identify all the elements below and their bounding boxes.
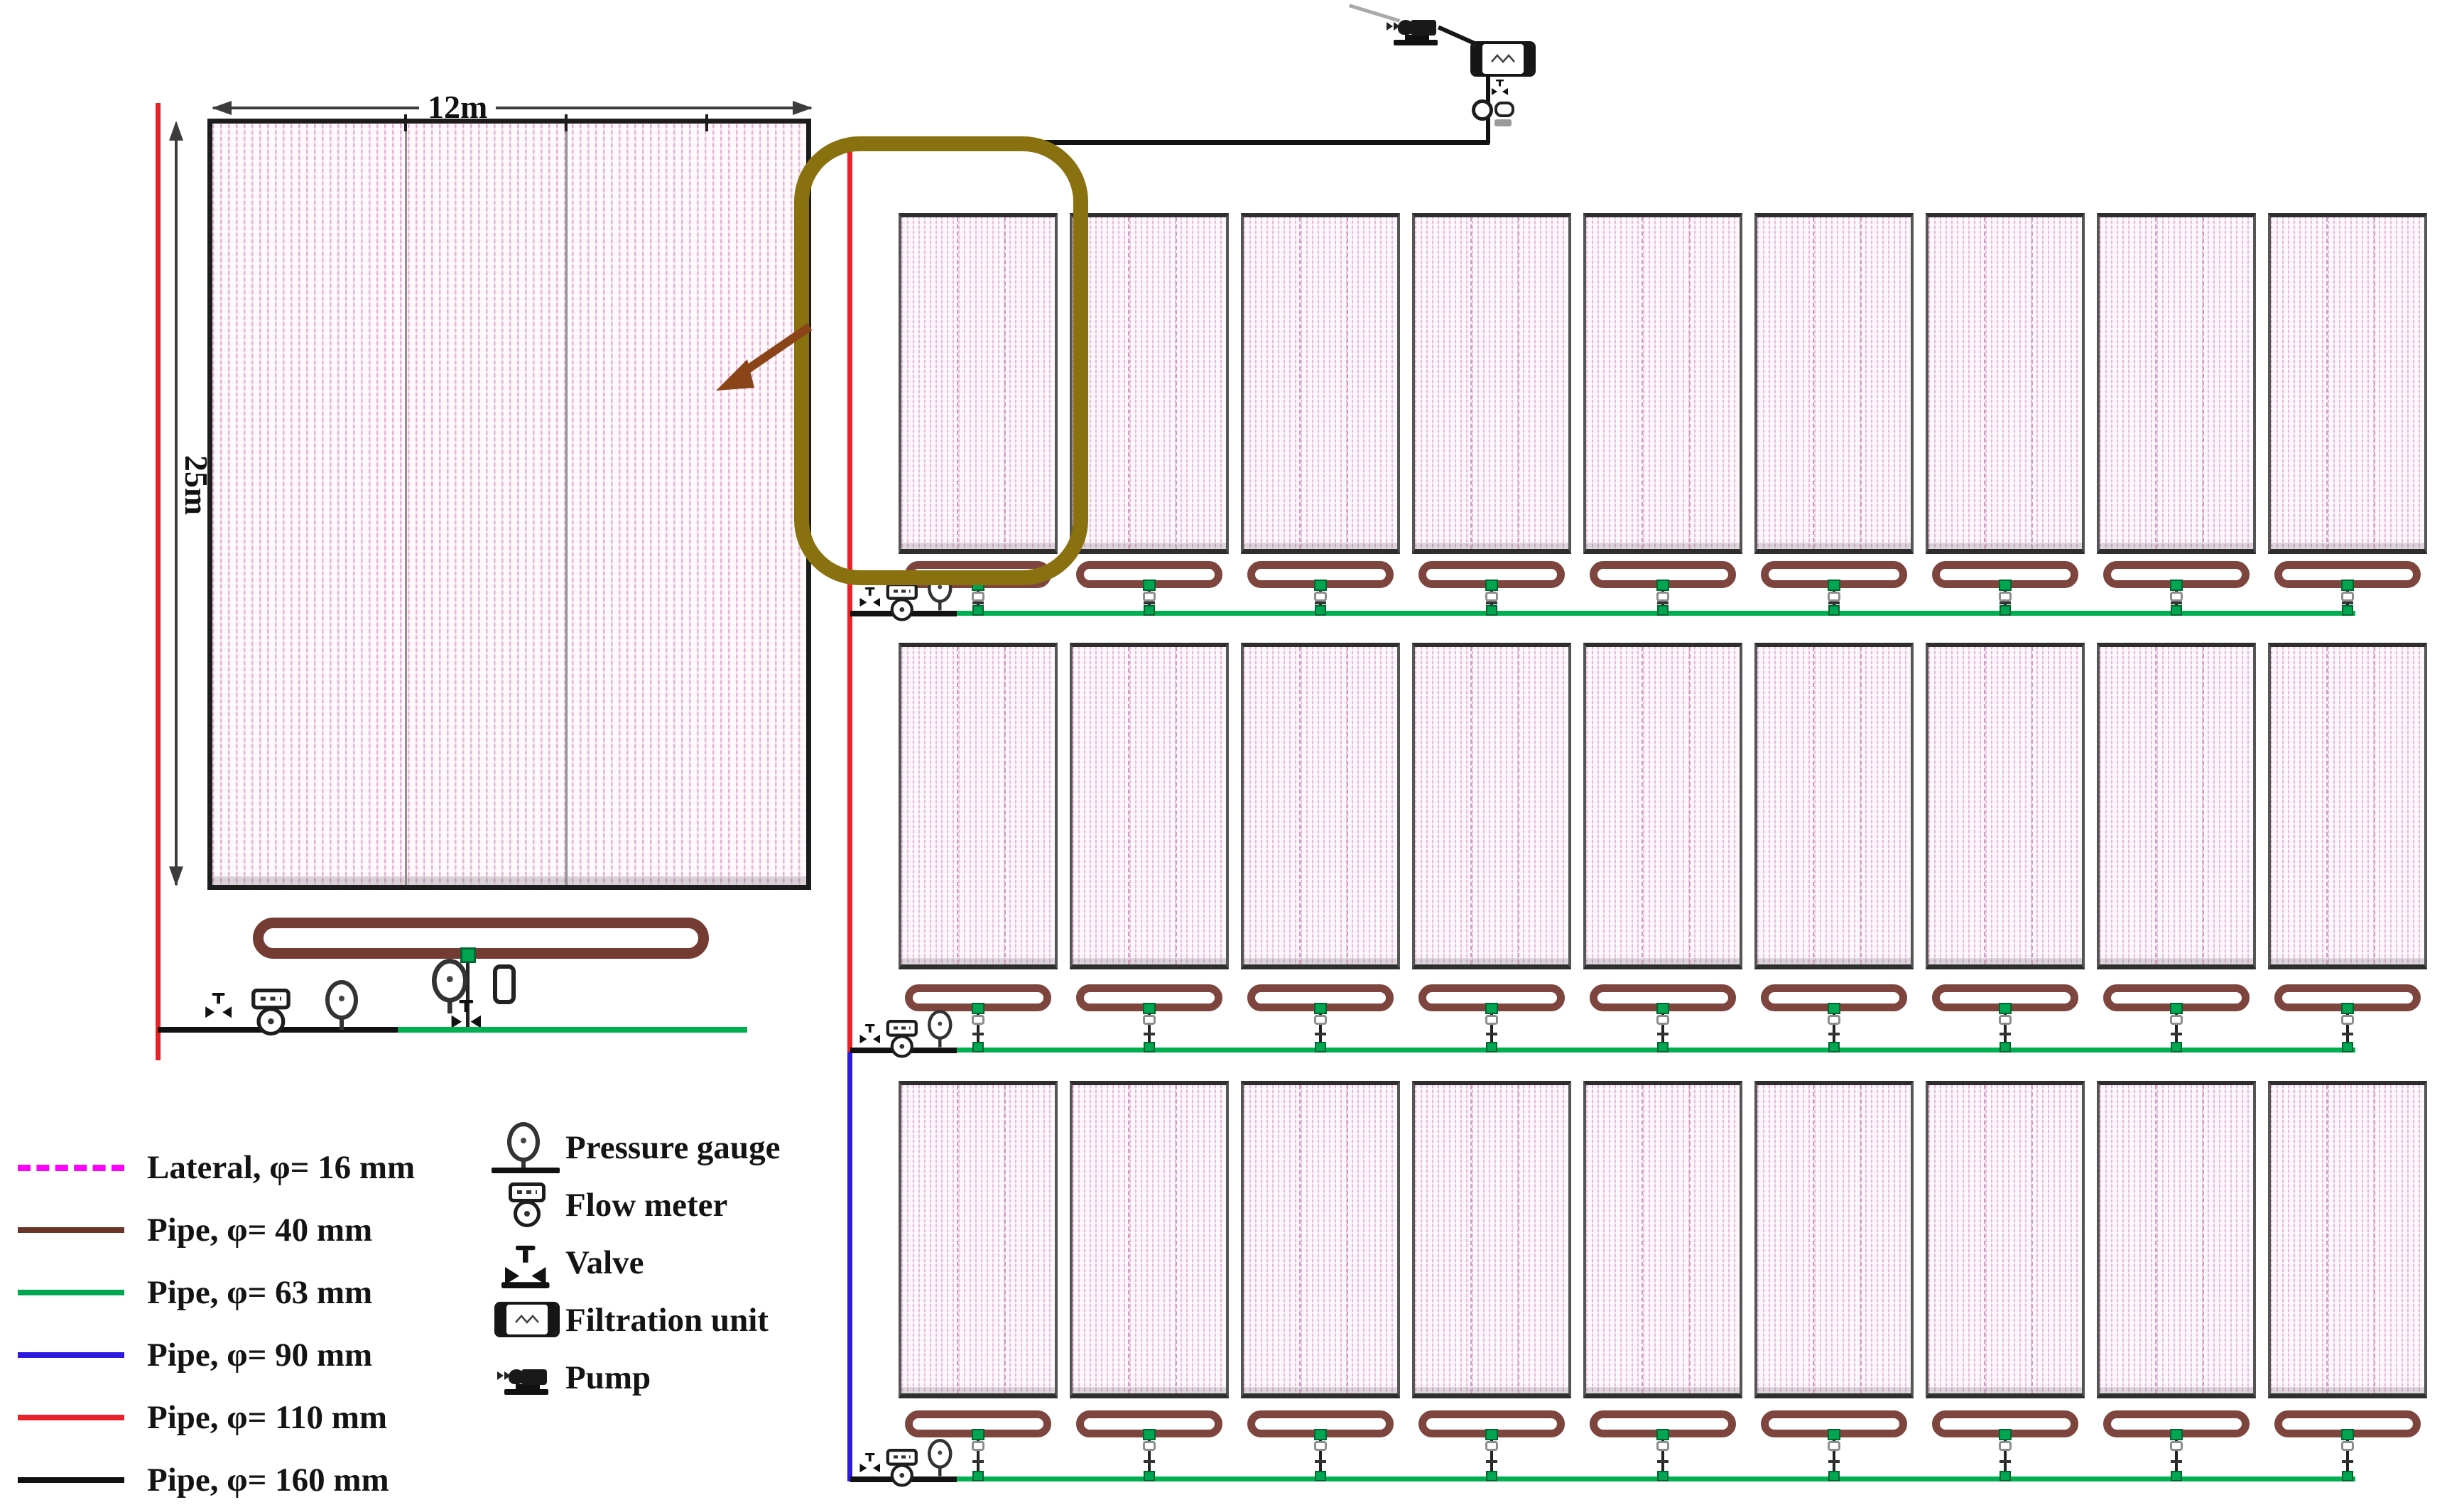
- plot-divider: [957, 647, 958, 964]
- legend-pipe-row: Pipe, φ= 160 mm: [18, 1449, 415, 1511]
- plot-tick: [565, 114, 568, 131]
- legend-pipe-row: Pipe, φ= 90 mm: [18, 1324, 415, 1386]
- plot-divider: [2374, 1085, 2375, 1393]
- plot-divider: [1813, 217, 1814, 549]
- plot-divider: [1299, 217, 1301, 549]
- main-pipe-90mm: [847, 1052, 852, 1481]
- field-plot: [1241, 643, 1400, 969]
- legend-pipe-label: Pipe, φ= 160 mm: [147, 1464, 389, 1497]
- manifold-valve-connector: [1141, 1429, 1157, 1481]
- pipe-160mm-swatch: [18, 1477, 124, 1483]
- field-plot: [1070, 1081, 1229, 1398]
- flow-meter-icon: [1472, 99, 1493, 121]
- filtration-unit-icon: [1470, 41, 1536, 77]
- plot-divider: [1347, 1085, 1348, 1393]
- arrowhead-up-icon: [169, 121, 183, 141]
- arrowhead-down-icon: [169, 866, 183, 886]
- manifold-valve-connector: [2340, 1003, 2355, 1053]
- meter-base: [1494, 119, 1512, 126]
- plot-divider: [2374, 647, 2375, 964]
- plot-divider: [1176, 647, 1177, 964]
- plot-divider: [1176, 1085, 1177, 1393]
- field-plot: [2097, 213, 2256, 554]
- manifold-valve-connector: [2169, 580, 2184, 616]
- lateral-16mm-swatch: [18, 1165, 124, 1171]
- field-plot: [1241, 213, 1400, 554]
- highlight-box: [794, 136, 1088, 585]
- field-plot: [1926, 213, 2085, 554]
- manifold-valve-connector: [1997, 1003, 2013, 1053]
- field-plot: [899, 1081, 1058, 1398]
- manifold-valve-connector: [1141, 1003, 1157, 1053]
- manifold-valve-connector: [1141, 580, 1157, 616]
- field-plot: [2268, 213, 2427, 554]
- manifold-valve-connector: [1997, 1429, 2013, 1481]
- legend-symbol-row: Filtration unit: [492, 1292, 780, 1349]
- plot-divider: [2203, 217, 2204, 549]
- manifold-valve-connector: [2169, 1003, 2184, 1053]
- legend-symbol-row: Valve: [492, 1234, 780, 1292]
- plot-divider: [1860, 1085, 1862, 1393]
- plot-divider: [2031, 647, 2033, 964]
- plot-divider: [1984, 647, 1985, 964]
- plot-divider: [1128, 647, 1129, 964]
- manifold-valve-connector: [1484, 1429, 1499, 1481]
- field-plot: [1412, 643, 1571, 969]
- flow-meter-icon: [492, 1178, 565, 1234]
- legend-pipe-label: Pipe, φ= 110 mm: [147, 1401, 387, 1435]
- manifold-valve-connector: [1313, 580, 1328, 616]
- manifold-valve-connector: [1313, 1003, 1328, 1053]
- detail-manifold-pipe-40mm: [253, 918, 709, 959]
- manifold-valve-connector: [1655, 580, 1671, 616]
- manifold-valve-connector: [1313, 1429, 1328, 1481]
- plot-divider: [1518, 1085, 1519, 1393]
- detail-submain-pipe-63mm: [398, 1027, 747, 1033]
- field-plot: [1754, 1081, 1914, 1398]
- plot-divider: [1004, 1085, 1006, 1393]
- manifold-valve-connector: [1655, 1429, 1671, 1481]
- field-plot: [1070, 643, 1229, 969]
- pump-icon: [492, 1351, 565, 1406]
- plot-divider: [2155, 647, 2156, 964]
- plot-divider: [1347, 217, 1348, 549]
- plot-divider: [2155, 1085, 2156, 1393]
- legend-pipe-row: Pipe, φ= 110 mm: [18, 1386, 415, 1449]
- manifold-valve-connector: [2340, 580, 2355, 616]
- field-plot: [1070, 213, 1229, 554]
- plot-divider: [2203, 1085, 2204, 1393]
- plot-divider: [2326, 647, 2328, 964]
- manifold-valve-connector: [1826, 580, 1842, 616]
- plot-divider: [565, 124, 568, 885]
- manifold-valve-connector: [2169, 1429, 2184, 1481]
- field-plot: [1412, 1081, 1571, 1398]
- flow-meter-icon: [885, 1449, 919, 1487]
- legend-symbols: Pressure gauge Flow meter Valve: [492, 1119, 780, 1407]
- legend-symbol-row: Pump: [492, 1349, 780, 1407]
- flow-meter-icon: [250, 989, 292, 1036]
- pipe-90mm-swatch: [18, 1352, 124, 1358]
- valve-icon: [203, 993, 234, 1020]
- manifold-valve-connector: [1826, 1003, 1842, 1053]
- pipe-40mm-swatch: [18, 1227, 124, 1233]
- plot-divider: [1642, 217, 1643, 549]
- field-plot: [2097, 643, 2256, 969]
- submain-pipe-63mm: [886, 1048, 2355, 1053]
- flow-meter-register: [1494, 102, 1514, 117]
- legend-pipe-row: Lateral, φ= 16 mm: [18, 1136, 415, 1199]
- field-plot: [1926, 1081, 2085, 1398]
- field-plot: [899, 643, 1058, 969]
- plot-divider: [2031, 217, 2033, 549]
- plot-divider: [1860, 647, 1862, 964]
- detail-gauge-body: [493, 964, 516, 1004]
- field-plot: [1241, 1081, 1400, 1398]
- pressure-gauge-icon: [928, 1439, 953, 1476]
- legend-pipe-label: Pipe, φ= 40 mm: [147, 1214, 372, 1247]
- plot-divider: [2155, 217, 2156, 549]
- plot-divider: [1689, 647, 1691, 964]
- field-plot: [1583, 1081, 1742, 1398]
- flow-meter-icon: [885, 1020, 919, 1058]
- legend-symbol-row: Flow meter: [492, 1177, 780, 1234]
- plot-divider: [2326, 217, 2328, 549]
- irrigation-network-diagram: 12m 25m Late: [0, 0, 2447, 1512]
- plot-divider: [1518, 217, 1519, 549]
- detail-plot: [207, 119, 811, 890]
- plot-divider: [1813, 647, 1814, 964]
- plot-divider: [2203, 647, 2204, 964]
- plot-divider: [1642, 1085, 1643, 1393]
- pressure-gauge-icon: [492, 1121, 565, 1176]
- width-dimension-line: [213, 107, 811, 109]
- legend-pipe-label: Pipe, φ= 90 mm: [147, 1339, 372, 1372]
- legend-symbol-label: Pump: [565, 1361, 651, 1395]
- field-plot: [1412, 213, 1571, 554]
- legend-symbol-label: Valve: [565, 1246, 644, 1280]
- valve-icon: [858, 587, 881, 609]
- legend-symbol-row: Pressure gauge: [492, 1119, 780, 1177]
- manifold-valve-connector: [1484, 580, 1499, 616]
- arrowhead-right-icon: [793, 101, 813, 115]
- valve-icon: [492, 1236, 565, 1291]
- manifold-valve-connector: [1655, 1003, 1671, 1053]
- pressure-gauge-icon: [325, 980, 358, 1030]
- plot-divider: [2031, 1085, 2033, 1393]
- plot-divider: [1299, 1085, 1301, 1393]
- field-plot: [1583, 213, 1742, 554]
- callout-arrow-icon: [703, 304, 831, 410]
- manifold-valve-connector: [970, 1429, 986, 1481]
- detail-main-pipe-110mm: [156, 103, 161, 1060]
- plot-divider: [1642, 647, 1643, 964]
- plot-divider: [1689, 1085, 1691, 1393]
- plot-divider: [1299, 647, 1301, 964]
- field-plot: [1754, 643, 1914, 969]
- legend-pipe-label: Lateral, φ= 16 mm: [147, 1151, 415, 1185]
- plot-divider: [405, 124, 407, 885]
- height-dimension-line: [175, 124, 178, 885]
- pipe-63mm-swatch: [18, 1290, 124, 1295]
- plot-divider: [1347, 647, 1348, 964]
- plot-divider: [2326, 1085, 2328, 1393]
- plot-divider: [1689, 217, 1691, 549]
- manifold-valve-connector: [1826, 1429, 1842, 1481]
- legend-pipes: Lateral, φ= 16 mm Pipe, φ= 40 mm Pipe, φ…: [18, 1136, 415, 1511]
- legend-symbol-label: Pressure gauge: [565, 1131, 780, 1165]
- plot-divider: [1470, 1085, 1472, 1393]
- valve-icon: [858, 1024, 881, 1045]
- plot-divider: [1128, 217, 1129, 549]
- field-plot: [2268, 1081, 2427, 1398]
- pressure-gauge-icon: [928, 1010, 953, 1048]
- manifold-valve-connector: [970, 1003, 986, 1053]
- plot-divider: [2374, 217, 2375, 549]
- legend-symbol-label: Filtration unit: [565, 1304, 769, 1337]
- legend-pipe-row: Pipe, φ= 63 mm: [18, 1261, 415, 1324]
- valve-icon: [1490, 80, 1509, 97]
- flow-meter-icon: [885, 583, 919, 621]
- plot-divider: [1518, 647, 1519, 964]
- plot-divider: [1470, 647, 1472, 964]
- manifold-valve-connector: [1484, 1003, 1499, 1053]
- plot-divider: [1860, 217, 1862, 549]
- submain-pipe-63mm: [886, 1476, 2355, 1481]
- plot-tick: [404, 114, 407, 131]
- valve-icon: [449, 1000, 484, 1030]
- plot-tick: [705, 114, 708, 131]
- plot-divider: [1984, 1085, 1985, 1393]
- filtration-unit-icon: [492, 1293, 565, 1349]
- plot-divider: [1176, 217, 1177, 549]
- field-plot: [2268, 643, 2427, 969]
- plot-divider: [957, 1085, 958, 1393]
- pipe-110mm-swatch: [18, 1415, 124, 1420]
- manifold-valve-connector: [2340, 1429, 2355, 1481]
- field-plot: [2097, 1081, 2256, 1398]
- plot-divider: [1128, 1085, 1129, 1393]
- submain-pipe-63mm: [886, 611, 2355, 616]
- arrowhead-left-icon: [212, 101, 232, 115]
- pump-icon: [1391, 10, 1440, 45]
- field-plot: [1926, 643, 2085, 969]
- field-plot: [1583, 643, 1742, 969]
- plot-divider: [1813, 1085, 1814, 1393]
- legend-pipe-label: Pipe, φ= 63 mm: [147, 1276, 372, 1310]
- valve-icon: [858, 1453, 881, 1474]
- legend-symbol-label: Flow meter: [565, 1189, 727, 1222]
- manifold-valve-connector: [1997, 580, 2013, 616]
- plot-divider: [1004, 647, 1006, 964]
- plot-divider: [1470, 217, 1472, 549]
- field-plot: [1754, 213, 1914, 554]
- plot-divider: [1984, 217, 1985, 549]
- legend-pipe-row: Pipe, φ= 40 mm: [18, 1199, 415, 1261]
